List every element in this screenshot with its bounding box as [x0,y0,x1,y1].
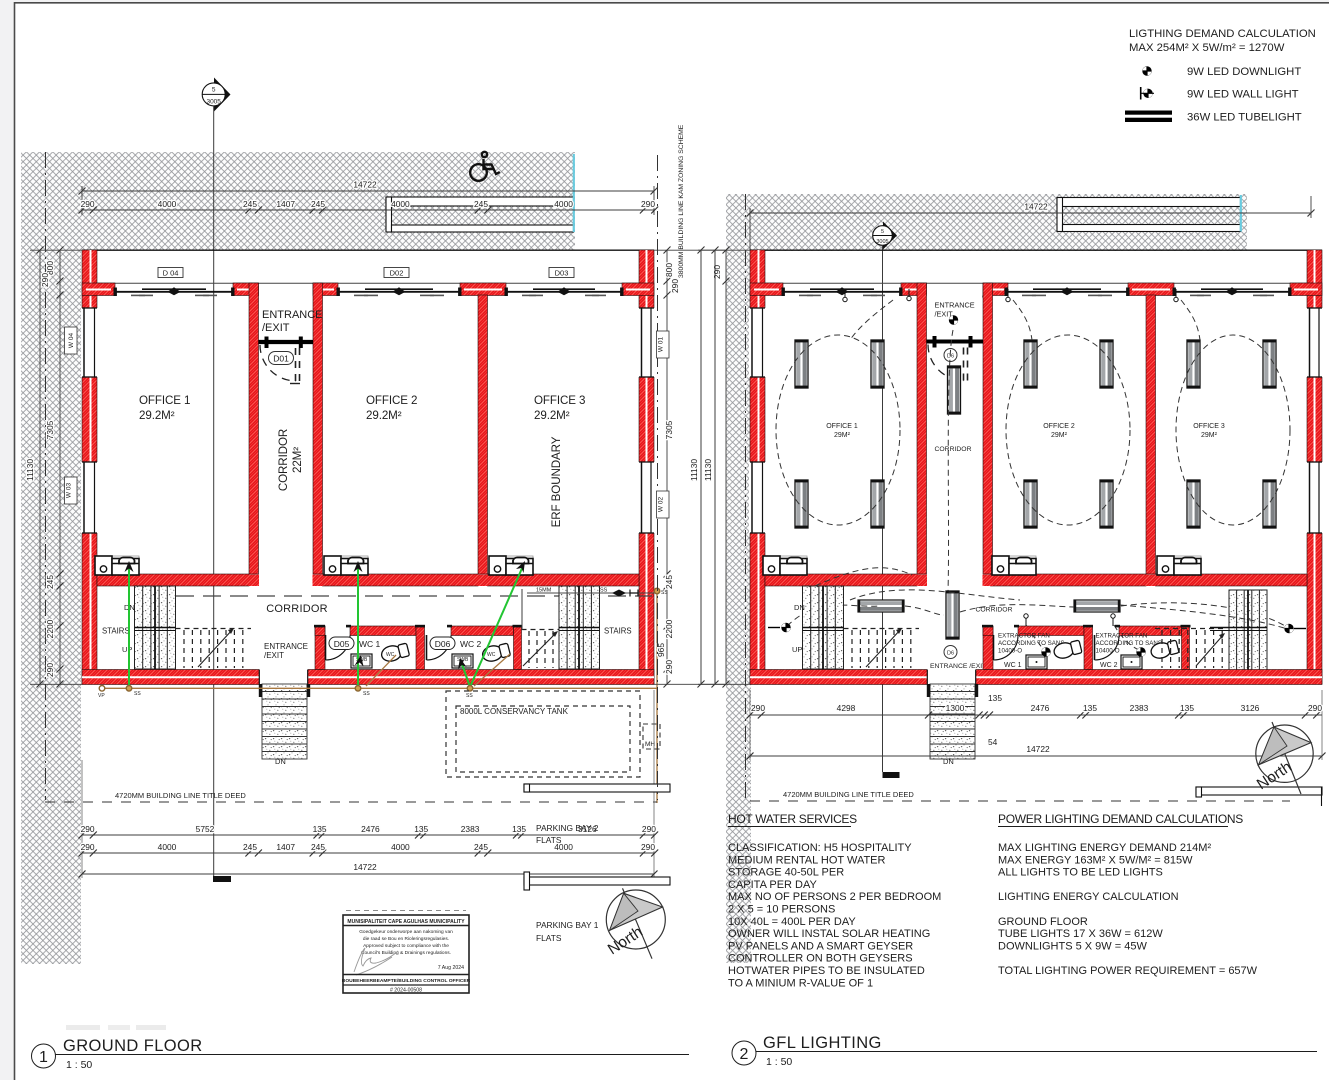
svg-text:2383: 2383 [461,824,480,834]
svg-text:14722: 14722 [1024,202,1048,212]
svg-text:TUBE LIGHTS 17 X 36W = 612W: TUBE LIGHTS 17 X 36W = 612W [998,928,1163,940]
svg-text:22M²: 22M² [291,447,304,473]
svg-text:2: 2 [740,1046,749,1063]
svg-text:5: 5 [881,229,884,235]
svg-text:D 04: D 04 [163,269,179,278]
svg-text:# 2024-00508: # 2024-00508 [390,988,422,994]
svg-text:245: 245 [311,199,325,209]
svg-text:10400-O: 10400-O [1096,648,1120,655]
svg-text:290: 290 [664,660,674,674]
svg-text:OFFICE 1: OFFICE 1 [826,423,858,430]
svg-text:UP: UP [122,645,132,654]
svg-text:36W LED TUBELIGHT: 36W LED TUBELIGHT [1187,112,1302,124]
svg-text:ACCORDING TO SANS: ACCORDING TO SANS [998,640,1064,647]
svg-text:290: 290 [641,842,655,852]
svg-text:29.2M²: 29.2M² [366,409,402,422]
svg-text:EXTRACTOR FAN: EXTRACTOR FAN [1096,633,1148,640]
svg-text:7305: 7305 [664,420,674,439]
svg-text:290: 290 [642,824,656,834]
svg-text:HOT WATER SERVICES: HOT WATER SERVICES [728,812,857,826]
svg-text:290: 290 [81,824,95,834]
svg-text:MAX NO OF PERSONS 2 PER BEDROO: MAX NO OF PERSONS 2 PER BEDROOM [728,891,941,903]
svg-text:2200: 2200 [45,619,55,638]
svg-text:DN: DN [943,757,954,766]
svg-text:STAIRS: STAIRS [102,627,130,636]
svg-text:1300: 1300 [946,703,965,713]
svg-text:3800MM BUILDING LINE KAM ZONIN: 3800MM BUILDING LINE KAM ZONING SCHEME [678,124,685,278]
svg-text:245: 245 [243,199,257,209]
svg-text:CONTROLLER ON BOTH GEYSERS: CONTROLLER ON BOTH GEYSERS [728,953,913,965]
svg-text:5752: 5752 [196,824,215,834]
svg-text:TO A MINIUM R-VALUE OF 1: TO A MINIUM R-VALUE OF 1 [728,977,873,989]
svg-text:FLATS: FLATS [536,933,562,943]
svg-text:4000: 4000 [554,199,573,209]
svg-text:ENTRANCE: ENTRANCE [264,642,308,651]
svg-text:14722: 14722 [353,180,377,190]
svg-text:MUNISIPALITEIT CAPE AGULHAS MU: MUNISIPALITEIT CAPE AGULHAS MUNICIPALITY [347,919,465,925]
svg-text:2 X 5 = 10 PERSONS: 2 X 5 = 10 PERSONS [728,904,835,916]
svg-text:EXTRACTOR FAN: EXTRACTOR FAN [998,633,1050,640]
svg-text:4000: 4000 [158,199,177,209]
svg-text:STORAGE 40-50L PER: STORAGE 40-50L PER [728,867,844,879]
svg-text:GFL LIGHTING: GFL LIGHTING [763,1034,882,1052]
svg-text:D02: D02 [390,269,404,278]
svg-text:STAIRS: STAIRS [604,627,632,636]
svg-text:SS: SS [363,691,370,697]
svg-text:4000: 4000 [391,199,410,209]
svg-text:2476: 2476 [1031,703,1050,713]
svg-text:15MM: 15MM [536,588,552,594]
svg-text:SWB: SWB [457,657,469,663]
svg-text:135: 135 [988,693,1002,703]
svg-text:Goedgekeur onderworpe aan nako: Goedgekeur onderworpe aan nakoming van [359,929,453,935]
svg-text:7 Aug 2024: 7 Aug 2024 [438,965,464,971]
svg-text:11130: 11130 [689,459,699,481]
svg-text:290: 290 [81,842,95,852]
svg-text:Council's Building & Drainings: Council's Building & Drainings regulatio… [361,950,451,956]
svg-text:ACCORDING TO SANS: ACCORDING TO SANS [1096,640,1162,647]
svg-text:245: 245 [474,199,488,209]
svg-text:CORRIDOR: CORRIDOR [934,446,971,453]
svg-text:10X 40L = 400L PER DAY: 10X 40L = 400L PER DAY [728,916,856,928]
svg-text:135: 135 [512,824,526,834]
svg-text:1 : 50: 1 : 50 [766,1056,792,1068]
svg-text:W 04: W 04 [68,333,75,349]
svg-text:135: 135 [1180,703,1194,713]
svg-text:W 01: W 01 [658,337,665,353]
svg-text:4000: 4000 [554,842,573,852]
svg-text:DOWNLIGHTS 5 X 9W = 45W: DOWNLIGHTS 5 X 9W = 45W [998,940,1147,952]
svg-text:2383: 2383 [1130,703,1149,713]
svg-text:29M²: 29M² [1201,432,1218,439]
svg-text:11130: 11130 [703,459,713,481]
svg-text:ERF BOUNDARY: ERF BOUNDARY [550,436,563,527]
svg-text:HOTWATER PIPES TO BE INSULATED: HOTWATER PIPES TO BE INSULATED [728,965,925,977]
svg-text:WC 2: WC 2 [460,639,482,649]
svg-text:OFFICE 2: OFFICE 2 [366,394,417,407]
svg-text:11130: 11130 [25,459,35,481]
svg-text:MAX LIGHTING ENERGY DEMAND 214: MAX LIGHTING ENERGY DEMAND 214M² [998,842,1211,854]
svg-text:D01: D01 [273,354,289,364]
svg-text:D6: D6 [947,651,954,657]
svg-text:GROUND FLOOR: GROUND FLOOR [998,916,1088,928]
svg-text:7305: 7305 [45,420,55,439]
svg-text:Approved subject to compliance: Approved subject to compliance with the [363,943,449,949]
svg-text:4000: 4000 [391,842,410,852]
svg-text:OFFICE 3: OFFICE 3 [1193,423,1225,430]
svg-text:D06: D06 [435,639,451,649]
svg-text:WC: WC [487,652,496,658]
svg-text:135: 135 [313,824,327,834]
svg-text:14722: 14722 [1026,744,1050,754]
svg-text:MAX 254M² X 5W/m² = 1270W: MAX 254M² X 5W/m² = 1270W [1129,42,1285,54]
svg-text:ENTRANCE: ENTRANCE [935,301,975,310]
svg-text:SS: SS [134,691,141,697]
svg-text:CLASSIFICATION: H5 HOSPITALITY: CLASSIFICATION: H5 HOSPITALITY [728,842,912,854]
svg-text:OFFICE 3: OFFICE 3 [534,394,585,407]
svg-text:800: 800 [664,263,674,277]
svg-text:/EXIT: /EXIT [262,322,290,334]
svg-text:245: 245 [474,842,488,852]
svg-text:3126: 3126 [578,824,597,834]
svg-text:BOUBEHEERBEAMPTE/BUILDING CONT: BOUBEHEERBEAMPTE/BUILDING CONTROL OFFICE… [342,978,471,984]
svg-text:OFFICE 1: OFFICE 1 [139,394,190,407]
svg-text:1407: 1407 [276,199,295,209]
svg-text:135: 135 [1083,703,1097,713]
svg-text:1: 1 [39,1049,48,1066]
svg-text:DN: DN [794,603,805,612]
svg-text:245: 245 [45,575,55,589]
svg-text:29M²: 29M² [834,432,851,439]
svg-text:290: 290 [751,703,765,713]
svg-text:MEDIUM RENTAL HOT WATER: MEDIUM RENTAL HOT WATER [728,854,886,866]
svg-text:SS: SS [600,588,608,594]
svg-text:10400-O: 10400-O [998,648,1022,655]
svg-text:3005: 3005 [876,239,888,245]
svg-text:9W LED DOWNLIGHT: 9W LED DOWNLIGHT [1187,66,1301,78]
svg-text:290: 290 [712,265,722,279]
svg-text:WC 1: WC 1 [1004,662,1022,669]
svg-text:CAPITA PER DAY: CAPITA PER DAY [728,879,818,891]
svg-text:CORRIDOR: CORRIDOR [266,603,328,615]
svg-text:LIGTHING DEMAND CALCULATION: LIGTHING DEMAND CALCULATION [1129,28,1316,40]
svg-text:CORRIDOR: CORRIDOR [277,429,290,491]
svg-text:4720MM BUILDING LINE TITLE DEE: 4720MM BUILDING LINE TITLE DEED [783,790,914,799]
svg-text:29M²: 29M² [1051,432,1068,439]
svg-text:ENTRANCE: ENTRANCE [262,309,323,321]
svg-text:9W LED WALL LIGHT: 9W LED WALL LIGHT [1187,89,1299,101]
svg-text:290: 290 [1308,703,1322,713]
svg-text:OFFICE 2: OFFICE 2 [1043,423,1075,430]
svg-text:3005: 3005 [206,99,221,106]
svg-text:TOTAL LIGHTING POWER REQUIREME: TOTAL LIGHTING POWER REQUIREMENT = 657W [998,965,1258,977]
svg-text:die raad se Bou en Rioleringsr: die raad se Bou en Rioleringsregulasies. [363,936,449,942]
svg-text:ALL LIGHTS TO BE LED LIGHTS: ALL LIGHTS TO BE LED LIGHTS [998,867,1163,879]
svg-text:D03: D03 [555,269,569,278]
svg-text:WC 2: WC 2 [1100,662,1118,669]
svg-text:290: 290 [40,273,50,287]
svg-text:UP: UP [792,645,802,654]
svg-text:5: 5 [212,87,216,94]
svg-text:290: 290 [45,663,55,677]
svg-text:MAX ENERGY 163M² X 5W/M² = 815: MAX ENERGY 163M² X 5W/M² = 815W [998,854,1193,866]
svg-text:800: 800 [45,261,55,275]
svg-text:14722: 14722 [353,862,377,872]
svg-text:2200: 2200 [664,619,674,638]
svg-text:29.2M²: 29.2M² [139,409,175,422]
svg-text:DN: DN [275,757,286,766]
svg-text:3126: 3126 [1241,703,1260,713]
svg-text:4720MM BUILDING LINE TITLE DEE: 4720MM BUILDING LINE TITLE DEED [115,791,246,800]
svg-text:SS: SS [466,693,473,699]
svg-text:LIGHTING ENERGY CALCULATION: LIGHTING ENERGY CALCULATION [998,891,1179,903]
svg-text:290: 290 [670,279,680,293]
svg-text:245: 245 [664,575,674,589]
svg-text:W 03: W 03 [66,483,73,499]
svg-text:290: 290 [641,199,655,209]
svg-text:29.2M²: 29.2M² [534,409,570,422]
svg-text:1 : 50: 1 : 50 [66,1059,92,1071]
svg-text:POWER LIGHTING DEMAND CALCULAT: POWER LIGHTING DEMAND CALCULATIONS [998,812,1243,826]
svg-text:ENTRANCE /EXIT: ENTRANCE /EXIT [930,663,986,670]
svg-text:135: 135 [414,824,428,834]
svg-text:1407: 1407 [276,842,295,852]
svg-text:245: 245 [243,842,257,852]
svg-text:/EXIT: /EXIT [264,651,284,660]
svg-text:D05: D05 [334,639,350,649]
svg-text:PV PANELS AND A SMART GEYSER: PV PANELS AND A SMART GEYSER [728,940,913,952]
svg-text:WC 1: WC 1 [359,639,381,649]
svg-text:GROUND FLOOR: GROUND FLOOR [63,1037,203,1055]
svg-text:54: 54 [988,737,998,747]
svg-text:W 02: W 02 [658,497,665,513]
svg-text:290: 290 [81,199,95,209]
svg-text:245: 245 [311,842,325,852]
svg-text:4000: 4000 [158,842,177,852]
svg-text:8000L CONSERVANCY TANK: 8000L CONSERVANCY TANK [460,707,569,716]
svg-text:4298: 4298 [837,703,856,713]
svg-text:PARKING BAY 1: PARKING BAY 1 [536,920,599,930]
svg-text:2476: 2476 [361,824,380,834]
svg-text:OWNER WILL INSTAL SOLAR HEATIN: OWNER WILL INSTAL SOLAR HEATING [728,928,930,940]
svg-text:VP: VP [98,693,105,699]
